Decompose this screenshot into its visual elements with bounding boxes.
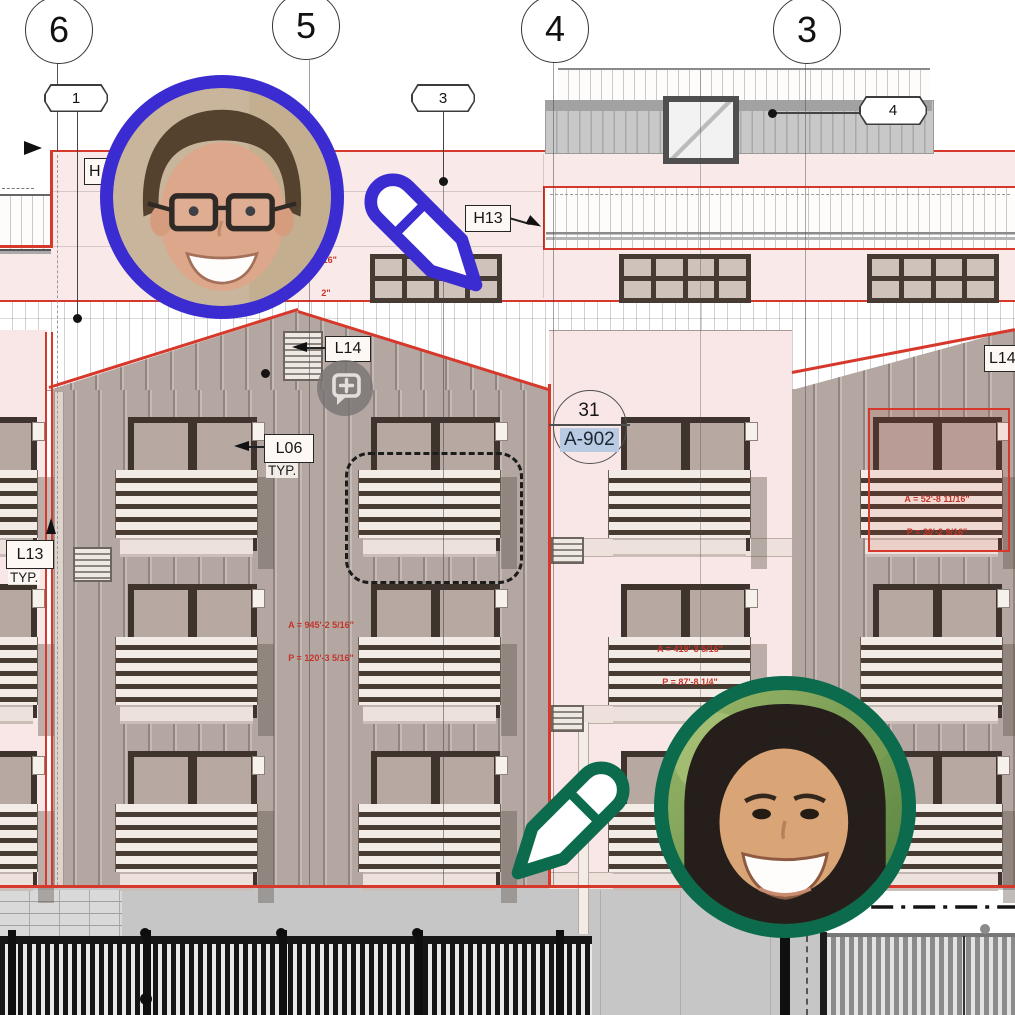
ground-joint-2 [680,890,681,1015]
add-comment-button[interactable] [317,360,373,416]
grid-bubble-5: 5 [272,0,340,60]
gate-post-1 [780,928,790,1015]
strip-window-pane [719,259,746,276]
callout-label: 1 [72,90,80,107]
elevation-drawing-canvas: A = 945'-2 5/16" P = 120'-3 5/16" A = 41… [0,0,1015,1015]
section-sheet-link[interactable]: A-902 [560,428,619,452]
louver-vent [73,547,112,582]
downspout-left [54,392,64,886]
strip-window-pane [936,259,963,276]
area-value: A = 52'-8 11/16" [872,494,1002,505]
metal-fence-toprail [0,936,592,944]
leader-dot [140,993,152,1005]
leader-dot [412,928,422,938]
tag-l13: L13 [6,540,54,569]
callout-pill-4: 4 [859,96,927,125]
gray-fence [822,936,1015,1015]
strip-window-pane [967,259,994,276]
callout-label: 4 [889,102,897,119]
section-cut-arrow [24,141,42,155]
tag-label: L06 [276,440,303,458]
grid-bubble-label: 3 [797,9,817,51]
grid-reference-line [77,112,78,318]
gate-post-2 [820,932,827,1015]
grid-reference-line [806,936,808,1015]
tag-label: H [89,163,101,181]
grid-bubble-label: 6 [49,9,69,51]
fence-post [556,930,564,1015]
leader-dot [980,924,990,934]
strip-window-pane [624,281,651,298]
parapet-strip-window-3 [867,254,999,303]
section-detail-number: 31 [553,400,625,422]
louver-vent [551,705,584,732]
leader-dot [276,928,286,938]
female-avatar-image [668,690,902,924]
male-avatar-image [113,88,331,306]
avatar-photo [668,690,902,924]
strip-window-pane [904,281,931,298]
ground-joint-1 [600,890,601,1015]
sheet-number-text: A-902 [564,429,615,450]
grid-reference-line [57,155,58,885]
fence-post [415,930,423,1015]
grid-bubble-4: 4 [521,0,589,63]
strip-window-pane [872,281,899,298]
fence-post [279,930,287,1015]
roof-band-line [0,318,1015,319]
collaborator-avatar-blue[interactable] [100,75,344,319]
strip-window-pane [967,281,994,298]
callout-pill-3: 3 [411,84,475,112]
fence-post [8,930,16,1015]
grid-bubble-6: 6 [25,0,93,64]
left-railing-strip [0,194,51,251]
clipped-line: 2" [300,288,352,299]
strip-window-pane [872,259,899,276]
grid-reference-line [963,936,965,1015]
parapet-strip-window-2 [619,254,751,303]
parapet-red-step-v [50,150,53,248]
brick-wall-block [0,890,122,937]
grid-bubble-label: 5 [296,5,316,47]
tag-label: L14 [335,340,362,358]
strip-window-pane [904,259,931,276]
metal-fence [0,936,592,1015]
area-annotation-3: A = 52'-8 11/16" P = 30'-2 9/16" [872,472,1002,560]
l14-leader-arrow [292,342,307,352]
grid-reference-line [543,154,544,298]
l06-leader-arrow [234,441,249,451]
tag-label: L14 [989,350,1015,368]
recessed-floor-band-1 [549,538,792,557]
leader-dot [73,314,82,323]
l13-leader-arrow [46,518,56,534]
section-marker-divider [549,424,630,426]
dashed-selection-rect [345,452,523,584]
cut-line-left-b [51,332,53,888]
collaborator-avatar-green[interactable] [654,676,916,938]
detail-number-text: 31 [578,400,599,421]
callout-4-leader [772,112,859,114]
strip-window-pane [656,281,683,298]
strip-window-pane [719,281,746,298]
grid-bubble-3: 3 [773,0,841,64]
area-value: A = 945'-2 5/16" [256,620,386,631]
tag-l14-right: L14 [984,345,1015,372]
comment-plus-icon [317,360,373,416]
strip-window-pane [624,259,651,276]
tag-l13-typ: TYP. [8,570,40,585]
grid-reference-line [553,61,554,885]
grid-bubble-label: 4 [545,8,565,50]
perimeter-value: P = 30'-2 9/16" [872,527,1002,538]
leader-dot [768,109,777,118]
leader-dot [140,928,150,938]
strip-window-pane [936,281,963,298]
avatar-photo [113,88,331,306]
bulkhead-door [663,96,739,164]
railing-top-dash [550,194,1010,195]
parapet-red-step-h [0,245,52,248]
callout-label: 3 [439,90,447,107]
tag-l06: L06 [264,434,314,463]
tag-label: TYP. [268,463,296,478]
area-value: A = 419'-3 5/16" [625,644,755,655]
grid-reference-line [443,112,444,181]
callout-pill-1: 1 [44,84,108,112]
perimeter-value: P = 120'-3 5/16" [256,653,386,664]
strip-window-pane [656,259,683,276]
roof-deck-railing-redbox [543,186,1015,250]
tag-label: TYP. [10,570,38,585]
louver-vent [551,537,584,564]
railing-bottom-rails [546,232,1015,240]
strip-window-pane [375,281,402,298]
tag-l06-typ: TYP. [266,463,298,478]
leader-dot [261,369,270,378]
l06-leader [249,446,265,448]
cut-line-left-a [45,332,47,888]
left-sliver-wall [0,330,47,888]
area-annotation-1: A = 945'-2 5/16" P = 120'-3 5/16" [256,598,386,686]
tag-label: L13 [17,546,44,564]
tag-l14-gable: L14 [325,336,371,362]
parapet-left-dash [2,188,34,189]
